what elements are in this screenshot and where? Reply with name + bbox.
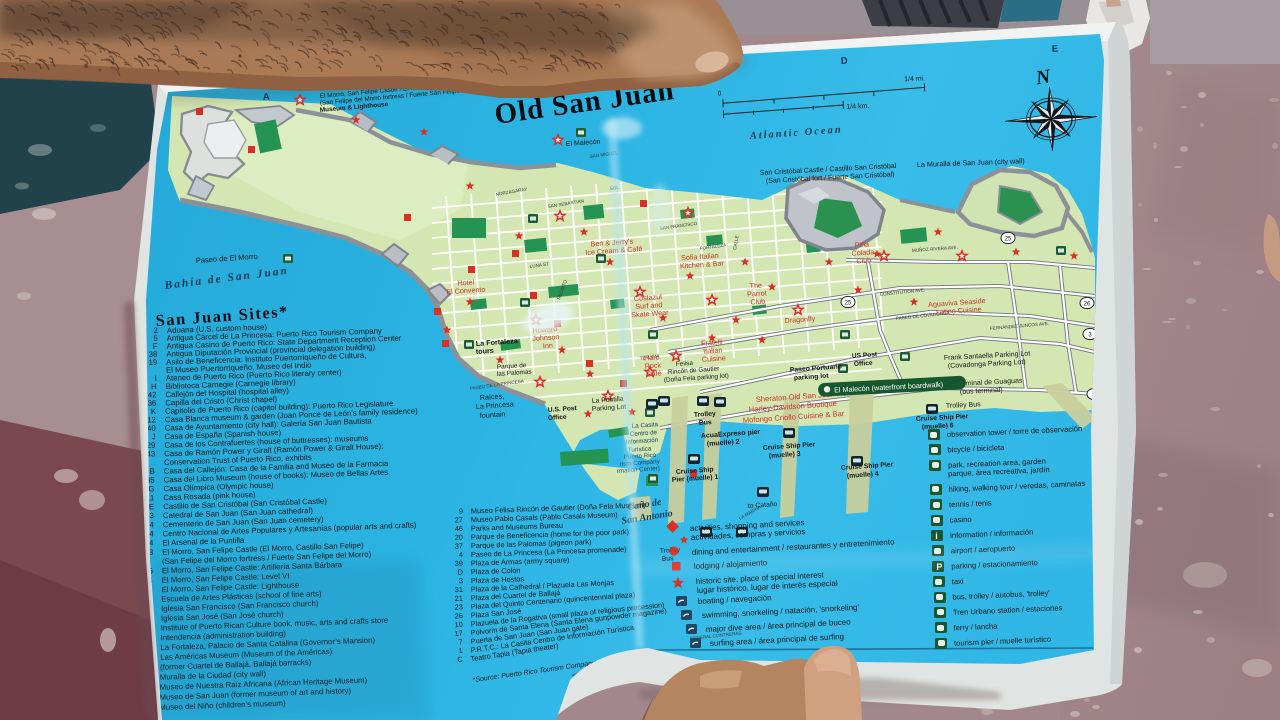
svg-text:Office: Office — [548, 414, 567, 422]
svg-text:G: G — [148, 484, 154, 493]
svg-text:Inn: Inn — [543, 341, 554, 351]
svg-text:D: D — [840, 56, 848, 67]
svg-text:Office: Office — [854, 360, 873, 368]
svg-text:Bus: Bus — [699, 419, 713, 427]
svg-text:25: 25 — [1005, 236, 1012, 242]
svg-text:tours: tours — [476, 346, 495, 356]
svg-text:1/4 mi.: 1/4 mi. — [904, 75, 925, 83]
svg-text:E: E — [149, 502, 155, 511]
svg-text:tennis / tenis: tennis / tenis — [949, 498, 992, 509]
svg-text:E: E — [1051, 44, 1058, 55]
svg-text:0: 0 — [717, 90, 721, 97]
svg-text:taxi: taxi — [952, 577, 965, 587]
svg-text:1/4 km.: 1/4 km. — [846, 103, 869, 111]
svg-text:26: 26 — [1084, 301, 1091, 307]
svg-text:Club: Club — [750, 297, 765, 307]
svg-text:B: B — [149, 467, 155, 476]
svg-text:Cuisine: Cuisine — [702, 353, 727, 364]
svg-text:25: 25 — [845, 300, 852, 306]
svg-text:Café: Café — [646, 368, 662, 378]
svg-text:i: i — [935, 531, 938, 541]
svg-text:casino: casino — [949, 515, 971, 525]
svg-text:Club: Club — [856, 256, 871, 266]
svg-text:fountain: fountain — [480, 409, 506, 420]
svg-text:19: 19 — [148, 358, 157, 367]
